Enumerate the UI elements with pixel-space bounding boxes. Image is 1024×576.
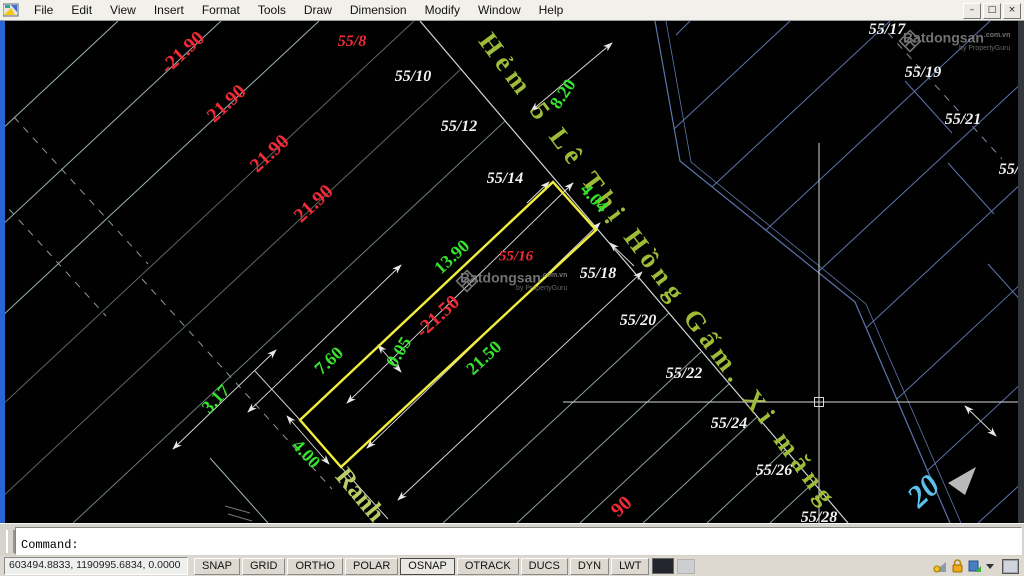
command-line-area: Command: xyxy=(0,523,1024,556)
highlighted-parcel-55-16[interactable] xyxy=(300,182,596,467)
menu-item-view[interactable]: View xyxy=(101,1,145,19)
update-status-icon[interactable] xyxy=(968,559,982,573)
parcel-55-28: 55/28 xyxy=(801,509,837,523)
menu-item-dimension[interactable]: Dimension xyxy=(341,1,416,19)
status-toggle-otrack[interactable]: OTRACK xyxy=(457,558,519,575)
drawing-canvas[interactable]: Hẻm 5 Lê Thị Hồng Gấm. Xi măng Ranh 20 B… xyxy=(0,21,1024,523)
clean-screen-button[interactable] xyxy=(1002,559,1019,574)
command-input[interactable]: Command: xyxy=(15,527,1022,555)
status-toggle-ducs[interactable]: DUCS xyxy=(521,558,568,575)
status-toggle-snap[interactable]: SNAP xyxy=(194,558,240,575)
watermark-top-right: Batdongsan.com.vn by PropertyGuru xyxy=(898,29,1010,52)
command-prompt: Command: xyxy=(16,538,83,554)
menu-item-format[interactable]: Format xyxy=(193,1,249,19)
lock-icon[interactable] xyxy=(951,559,964,573)
restore-button[interactable]: □ xyxy=(983,3,1001,19)
parcel-55-14: 55/14 xyxy=(487,170,523,188)
menu-item-window[interactable]: Window xyxy=(469,1,530,19)
parcel-55-10: 55/10 xyxy=(395,68,431,86)
annotation-scale-icon[interactable] xyxy=(933,559,947,573)
command-window-grip[interactable] xyxy=(6,530,15,553)
batdongsan-logo-icon xyxy=(455,269,479,293)
minimize-button[interactable]: – xyxy=(963,3,981,19)
window-controls: –□× xyxy=(963,3,1021,19)
menu-item-tools[interactable]: Tools xyxy=(249,1,295,19)
model-tab-icon[interactable] xyxy=(652,558,674,574)
status-toggle-lwt[interactable]: LWT xyxy=(611,558,649,575)
paper-space-icon[interactable] xyxy=(677,559,695,574)
cad-application-window: FileEditViewInsertFormatToolsDrawDimensi… xyxy=(0,0,1024,576)
menu-item-modify[interactable]: Modify xyxy=(416,1,469,19)
tray-dropdown-caret-icon[interactable] xyxy=(986,564,994,569)
menu-item-file[interactable]: File xyxy=(25,1,62,19)
parcel-55-12: 55/12 xyxy=(441,118,477,136)
status-tray xyxy=(933,559,1019,574)
menu-item-edit[interactable]: Edit xyxy=(62,1,101,19)
menu-item-help[interactable]: Help xyxy=(530,1,573,19)
status-toggle-polar[interactable]: POLAR xyxy=(345,558,398,575)
parcel-55-26: 55/26 xyxy=(756,462,792,480)
close-button[interactable]: × xyxy=(1003,3,1021,19)
status-toggle-dyn[interactable]: DYN xyxy=(570,558,609,575)
coordinate-readout: 603494.8833, 1190995.6834, 0.0000 xyxy=(4,557,188,575)
status-bar: 603494.8833, 1190995.6834, 0.0000 SNAPGR… xyxy=(0,556,1024,576)
menu-item-draw[interactable]: Draw xyxy=(295,1,341,19)
leader-arrowhead xyxy=(948,467,976,495)
parcel-55-8: 55/8 xyxy=(338,33,366,51)
parcel-55-18: 55/18 xyxy=(580,265,616,283)
parcel-55-16: 55/16 xyxy=(499,249,533,266)
window-left-border xyxy=(0,21,5,523)
menu-items: FileEditViewInsertFormatToolsDrawDimensi… xyxy=(25,1,572,19)
menu-bar: FileEditViewInsertFormatToolsDrawDimensi… xyxy=(0,0,1024,21)
parcel-55-21: 55/21 xyxy=(945,111,981,129)
status-toggle-grid[interactable]: GRID xyxy=(242,558,286,575)
right-parcel-lines xyxy=(674,21,1024,523)
parcel-55-22: 55/22 xyxy=(666,365,702,383)
status-toggle-osnap[interactable]: OSNAP xyxy=(400,558,455,575)
menu-item-insert[interactable]: Insert xyxy=(145,1,193,19)
left-parcel-lines xyxy=(0,21,813,523)
watermark-center: Batdongsan.com.vn by PropertyGuru xyxy=(455,269,567,292)
parcel-55-20: 55/20 xyxy=(620,312,656,330)
parcel-55-17: 55/17 xyxy=(869,21,905,39)
parcel-55-19: 55/19 xyxy=(905,64,941,82)
status-toggles: SNAPGRIDORTHOPOLAROSNAPOTRACKDUCSDYNLWT xyxy=(194,558,649,575)
status-toggle-ortho[interactable]: ORTHO xyxy=(287,558,343,575)
parcel-55-24: 55/24 xyxy=(711,415,747,433)
app-icon xyxy=(3,3,19,17)
window-right-border xyxy=(1018,21,1024,523)
